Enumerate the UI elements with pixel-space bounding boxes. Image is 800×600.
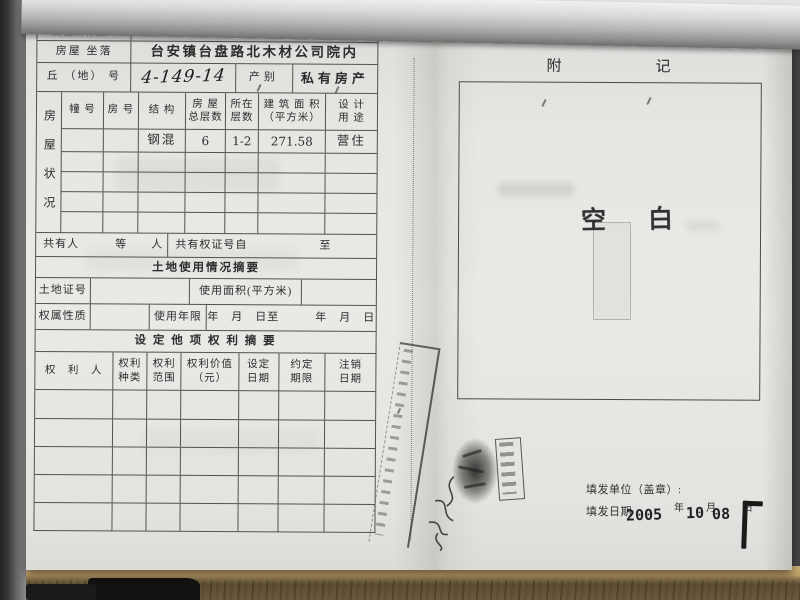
stamped-day: 08 (712, 505, 731, 524)
cell (185, 193, 225, 212)
cell (186, 173, 226, 192)
status-header-row: 幢 号 房 号 结 构 房 屋 总层数 所在 层数 建 筑 面 积 （平方米） … (62, 92, 377, 131)
cell (181, 448, 239, 475)
col-right-scope: 权利 范围 (148, 353, 182, 390)
cell (225, 213, 258, 233)
plot-row: 丘 （地） 号 4-149-14 产别 私有房产 (37, 63, 377, 94)
empty-row (35, 475, 375, 505)
use-years-label: 使用年限 (150, 305, 207, 330)
tenure-dates: 年 月 日至 年 月 日 (207, 305, 376, 331)
cell (238, 476, 278, 503)
cell (34, 503, 112, 530)
cell (258, 213, 325, 233)
cell (147, 504, 181, 531)
col-right-value: 权利价值 （元） (181, 353, 239, 390)
col-right-type: 权利 种类 (113, 352, 148, 389)
cell (104, 152, 139, 171)
blank-stamp-char: 空 (581, 200, 607, 236)
category-value: 私有房产 (293, 65, 378, 94)
cell (302, 280, 376, 305)
cell (103, 192, 138, 211)
cell (138, 193, 185, 212)
location-value: 台安镇台盘路北木材公司院内 (132, 42, 378, 64)
stamped-year: 2005 (626, 505, 663, 524)
cell (278, 504, 325, 531)
house-status-grid: 幢 号 房 号 结 构 房 屋 总层数 所在 层数 建 筑 面 积 （平方米） … (61, 92, 377, 234)
cell (278, 476, 325, 503)
cell (325, 194, 376, 213)
col-cancel-date: 注销 日期 (326, 354, 376, 391)
cell (325, 214, 376, 234)
structure-value: 钢混 (139, 130, 186, 152)
cell (35, 419, 113, 446)
cell (239, 420, 279, 447)
cell (90, 304, 150, 329)
location-row: 房屋 坐落 台安镇台盘路北木材公司院内 (37, 41, 377, 65)
plot-number-cell: 4-149-14 (132, 64, 237, 93)
cell (326, 174, 377, 193)
cell (325, 392, 375, 420)
cell (112, 447, 147, 474)
cell (62, 129, 104, 151)
empty-row (61, 212, 376, 234)
cell (103, 212, 138, 232)
cell (226, 153, 259, 172)
cell (62, 152, 104, 171)
cell (259, 173, 326, 192)
corner-bracket-stamp (738, 501, 766, 554)
corner-bracket-vertical (741, 501, 748, 549)
stamp-illegible-text (499, 442, 517, 495)
photo-scene: 房屋所有权人 白建华 房屋 坐落 台安镇台盘路北木材公司院内 丘 （地） 号 4… (0, 0, 800, 600)
empty-row (35, 390, 375, 421)
col-floor-located: 所在 层数 (226, 93, 259, 129)
co-owner-row: 共有人 等 人 共有权证号自 至 (36, 233, 376, 259)
cell (138, 213, 185, 233)
col-right-holder: 权 利 人 (35, 352, 113, 389)
house-status-block: 房屋状况 幢 号 房 号 结 构 房 屋 总层数 所在 层数 建 筑 面 积 （… (36, 92, 377, 235)
handwritten-scribble (416, 470, 476, 557)
col-room-no: 房 号 (104, 92, 139, 128)
cell (181, 420, 239, 447)
empty-row (34, 503, 374, 532)
blank-stamp: 空 白 (581, 199, 674, 237)
empty-row (62, 172, 377, 194)
col-total-floors: 房 屋 总层数 (186, 93, 226, 129)
stamped-month: 10 (686, 504, 705, 523)
col-structure: 结 构 (139, 93, 186, 129)
empty-row (35, 419, 375, 449)
col-agreed-term: 约定 期限 (279, 353, 326, 390)
house-status-side-label: 房屋状况 (36, 92, 62, 232)
rights-header-row: 权 利 人 权利 种类 权利 范围 权利价值 （元） 设定 日期 约定 期限 注… (35, 352, 375, 392)
background-left-margin (0, 0, 26, 600)
category-label: 产别 (236, 64, 293, 92)
land-section-title-row: 土地使用情况摘要 (36, 257, 376, 280)
cell (325, 421, 375, 448)
location-label: 房屋 坐落 (37, 41, 132, 63)
dark-object-shadow (26, 584, 96, 600)
rights-section-title-row: 设 定 他 项 权 利 摘 要 (36, 330, 376, 354)
unit-year: 年 (674, 503, 684, 514)
cell (61, 192, 103, 211)
cell (181, 476, 239, 503)
appendix-title-char: 附 (546, 55, 563, 76)
cell (325, 449, 375, 476)
col-floor-area: 建 筑 面 积 （平方米） (259, 93, 326, 129)
small-rectangular-stamp (495, 437, 525, 501)
cell (35, 390, 113, 418)
blank-stamp-char: 白 (648, 199, 674, 235)
cell (139, 173, 186, 192)
cell (147, 448, 181, 475)
plot-label: 丘 （地） 号 (37, 63, 132, 92)
status-data-row: 钢混 6 1-2 271.58 营住 (62, 129, 377, 154)
cell (238, 504, 278, 531)
cell (279, 420, 326, 447)
empty-row (62, 152, 377, 174)
use-area-label: 使用面积(平方米) (190, 279, 302, 305)
col-building-no: 幢 号 (62, 92, 104, 128)
cell (278, 448, 325, 475)
empty-row (61, 192, 376, 214)
land-section-title: 土地使用情况摘要 (36, 257, 376, 279)
cell (112, 503, 147, 530)
cell (104, 129, 139, 151)
total-floors-value: 6 (186, 130, 226, 152)
dark-object-under-desk-edge (88, 578, 200, 600)
cell (225, 193, 258, 212)
cell (325, 505, 375, 532)
cell (35, 475, 113, 502)
land-cert-row: 土地证号 使用面积(平方米) (36, 278, 376, 306)
col-set-date: 设定 日期 (239, 353, 279, 390)
property-form-table: 房屋所有权人 白建华 房屋 坐落 台安镇台盘路北木材公司院内 丘 （地） 号 4… (33, 17, 378, 533)
cell (181, 504, 239, 531)
cell (258, 193, 325, 212)
floors-value: 1-2 (226, 130, 259, 152)
cell (112, 475, 147, 502)
cell (113, 390, 148, 418)
co-owner-right: 共有权证号自 至 (168, 234, 376, 258)
cell (325, 477, 375, 504)
cell (35, 447, 113, 474)
appendix-title-char: 记 (655, 55, 672, 76)
cell (259, 153, 326, 172)
land-cert-label: 土地证号 (36, 278, 91, 303)
rights-section-title: 设 定 他 项 权 利 摘 要 (36, 330, 376, 353)
area-value: 271.58 (259, 130, 326, 152)
cell (185, 213, 225, 233)
cell (239, 448, 279, 475)
cell (147, 391, 181, 419)
paper-right-shading (762, 8, 792, 570)
appendix-box (457, 81, 762, 401)
cell (181, 391, 239, 419)
cell (61, 212, 103, 232)
cell (239, 391, 279, 419)
cell (147, 476, 181, 503)
cell (326, 154, 377, 173)
cell (139, 153, 186, 172)
plot-number-handwriting: 4-149-14 (140, 66, 227, 90)
cell (112, 419, 147, 446)
cell (62, 172, 104, 191)
col-designed-use: 设 计 用 途 (326, 94, 377, 130)
appendix-title: 附 记 (458, 54, 761, 77)
cell (147, 420, 181, 447)
cell (226, 173, 259, 192)
issuer-label: 填发单位（盖章）: (586, 481, 682, 497)
cell (104, 172, 139, 191)
empty-row (35, 447, 375, 477)
tenure-label: 权属性质 (36, 304, 91, 329)
cell (279, 391, 326, 419)
co-owner-left: 共有人 等 人 (36, 233, 168, 257)
tenure-row: 权属性质 使用年限 年 月 日至 年 月 日 (36, 304, 376, 332)
cell (91, 278, 191, 304)
use-value: 营住 (326, 131, 377, 153)
cell (186, 153, 226, 172)
